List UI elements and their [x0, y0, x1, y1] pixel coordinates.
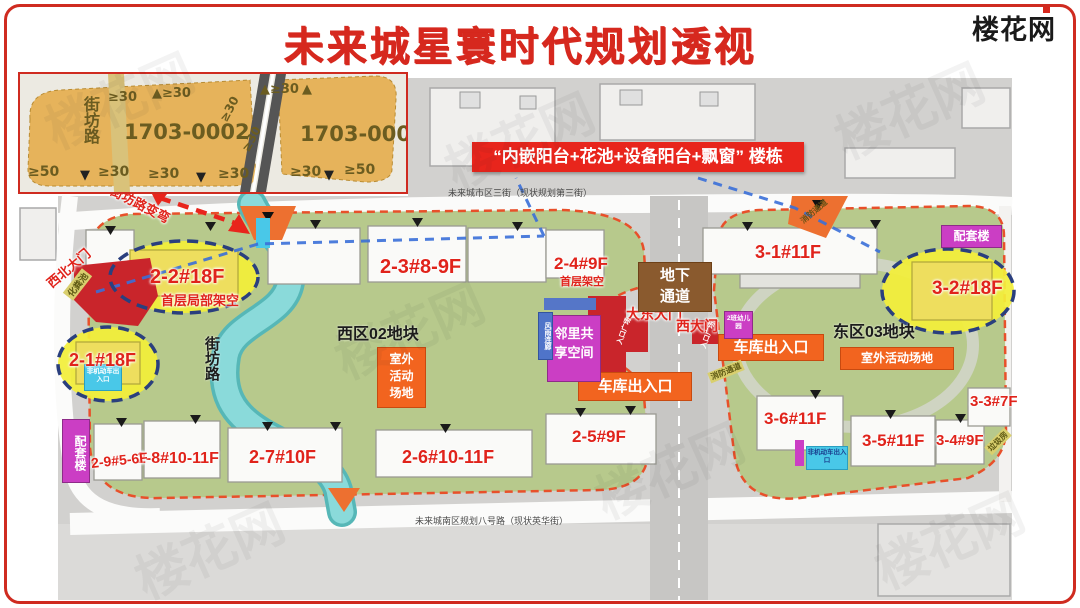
inset-parcel-left: 1703-0002: [124, 120, 250, 144]
inset-setback: ≥50: [28, 164, 59, 180]
building-label-2-6: 2-6#10-11F: [402, 447, 494, 468]
feature-banner: “内嵌阳台+花池+设备阳台+飘窗” 楼栋: [472, 142, 804, 172]
building-label-3-3: 3-3#7F: [970, 393, 1018, 410]
inset-setback: ▼: [80, 168, 90, 183]
inset-setback: ≥30: [148, 166, 179, 182]
parcel-east-label: 东区03地块: [833, 318, 915, 342]
site-logo: 楼花网: [972, 8, 1076, 47]
building-label-2-8: 2-8#10-11F: [137, 450, 219, 468]
parcel-inset-map: 街坊路 1703-0002 1703-0003 ≥30 ▲≥30 ≥30 ≥30…: [18, 72, 408, 194]
site-logo-text: 楼花网: [972, 15, 1056, 46]
outdoor-area-line: 活动: [378, 368, 425, 385]
building-label-3-2: 3-2#18F: [932, 278, 1003, 300]
street-vertical-label: 街坊路: [201, 336, 222, 381]
building-note-2-4: 首层架空: [560, 273, 604, 289]
outdoor-area-line: 场地: [378, 385, 425, 402]
page-title: 未来城星寰时代规划透视: [200, 14, 840, 72]
building-note-2-2: 首层局部架空: [161, 290, 239, 309]
building-label-2-5: 2-5#9F: [572, 427, 626, 447]
building-label-2-3: 2-3#8-9F: [380, 256, 461, 279]
planning-map-page: 楼花网 楼花网 楼花网 楼花网 楼花网 楼花网 楼花网 未来城星寰时代规划透视 …: [0, 0, 1080, 608]
inset-setback: ≥30: [98, 164, 129, 180]
inset-street-label: 街坊路: [78, 96, 102, 144]
support-building-east: 配套楼: [941, 225, 1002, 248]
inset-setback: ▼: [196, 170, 206, 185]
base-bottom: [58, 524, 1012, 600]
building-label-2-4: 2-4#9F: [554, 254, 608, 274]
shared-space-box: 邻里共 享空间: [547, 315, 601, 382]
inset-setback: ▲: [302, 82, 312, 97]
outdoor-area-west: 室外 活动 场地: [377, 347, 426, 408]
inset-setback: ≥50: [344, 162, 375, 178]
underground-passage-box: 地下通道: [638, 262, 712, 312]
underground-passage-label: 地下通道: [657, 265, 693, 307]
building-label-3-4: 3-4#9F: [936, 432, 984, 449]
parcel-west-label: 西区02地块: [337, 320, 419, 344]
building-label-2-2: 2-2#18F: [150, 266, 225, 289]
building-label-3-6: 3-6#11F: [764, 409, 826, 429]
inset-parcel-right: 1703-0003: [300, 122, 408, 146]
outdoor-area-east: 室外活动场地: [840, 347, 954, 370]
road-name-bottom: 未来城南区规划八号路（现状英华街）: [415, 514, 568, 527]
inset-setback: ▲≥30: [260, 82, 299, 97]
inset-setback: ▼: [324, 168, 334, 183]
logo-seal-dot: [1043, 6, 1050, 13]
inset-setback: ≥30: [290, 164, 321, 180]
inset-setback: ≥30: [108, 90, 137, 105]
inset-setback: ≥30: [218, 166, 249, 182]
building-label-2-7: 2-7#10F: [249, 447, 316, 468]
building-label-2-1: 2-1#18F: [69, 350, 136, 371]
shared-space-line: 享空间: [548, 343, 600, 362]
building-label-3-1: 3-1#11F: [755, 242, 821, 263]
inset-setback: ▲≥30: [152, 86, 191, 101]
shared-space-line: 邻里共: [548, 324, 600, 343]
nonmotor-entrance-east: 非机动车出入口: [806, 446, 848, 470]
blue-slab: [544, 298, 596, 310]
kindergarten-box: 2班幼儿园: [724, 311, 753, 339]
magenta-strip: [795, 440, 804, 466]
road-name-top: 未来城市区三街（现状规划第三街）: [448, 186, 592, 199]
outdoor-area-line: 室外: [378, 351, 425, 368]
support-building-west: 配套楼: [62, 419, 90, 483]
building-label-3-5: 3-5#11F: [862, 431, 924, 451]
rain-corridor-strip: 风雨连廊: [538, 312, 553, 360]
